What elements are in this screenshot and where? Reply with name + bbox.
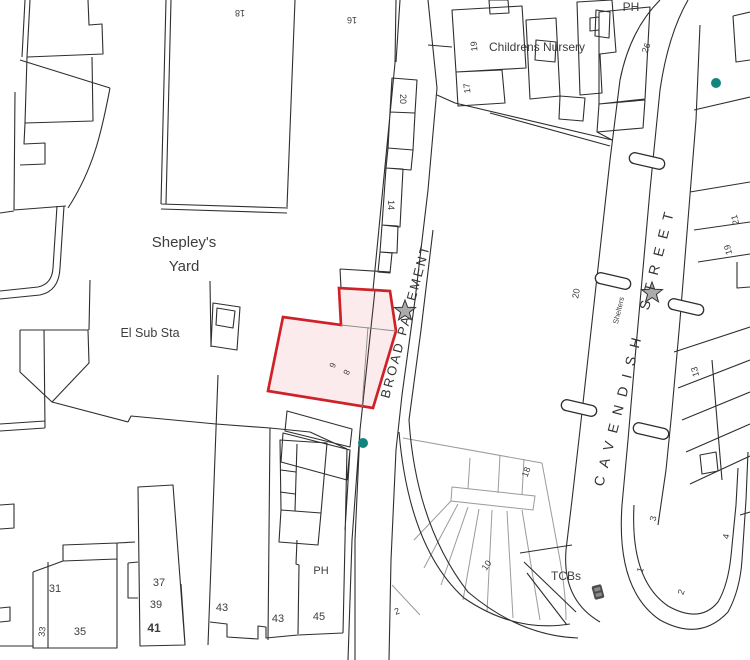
- teal-dot-icon: [358, 438, 368, 448]
- map-label-no-20-block: 20: [570, 288, 582, 300]
- map-label-ph-top: PH: [623, 0, 640, 14]
- map-label-no-33: 33: [36, 626, 47, 637]
- map-label-no-43-b: 43: [272, 613, 284, 625]
- map-label-no-17-nursery: 17: [462, 83, 473, 94]
- map-label-el-sub-sta: El Sub Sta: [120, 326, 179, 340]
- map-label-no-35: 35: [74, 626, 86, 638]
- map-canvas: BROAD PA EMENT CAVENDISH STREET 1816PHCh…: [0, 0, 750, 660]
- map-label-no-39: 39: [150, 599, 162, 611]
- map-label-childrens-nursery: Childrens Nursery: [489, 40, 585, 54]
- map-label-no-16-top: 16: [347, 15, 357, 25]
- map-label-no-20-strip: 20: [398, 94, 408, 104]
- map-label-no-43-a: 43: [216, 602, 228, 614]
- map-label-no-37: 37: [153, 577, 165, 589]
- teal-dot-icon: [711, 78, 721, 88]
- site-plan-map: BROAD PA EMENT CAVENDISH STREET 1816PHCh…: [0, 0, 750, 660]
- map-label-tcbs: TCBs: [551, 569, 581, 583]
- map-label-no-41: 41: [147, 621, 161, 635]
- map-label-no-31: 31: [49, 583, 61, 595]
- map-label-shepleys-yard-2: Yard: [169, 258, 200, 275]
- map-label-no-19-nursery: 19: [469, 41, 480, 52]
- map-label-no-14-strip: 14: [386, 200, 396, 210]
- map-label-shepleys-yard-1: Shepley's: [152, 234, 217, 251]
- map-label-no-45: 45: [313, 611, 325, 623]
- map-label-ph-south: PH: [313, 565, 328, 577]
- map-label-no-18-top: 18: [235, 8, 245, 18]
